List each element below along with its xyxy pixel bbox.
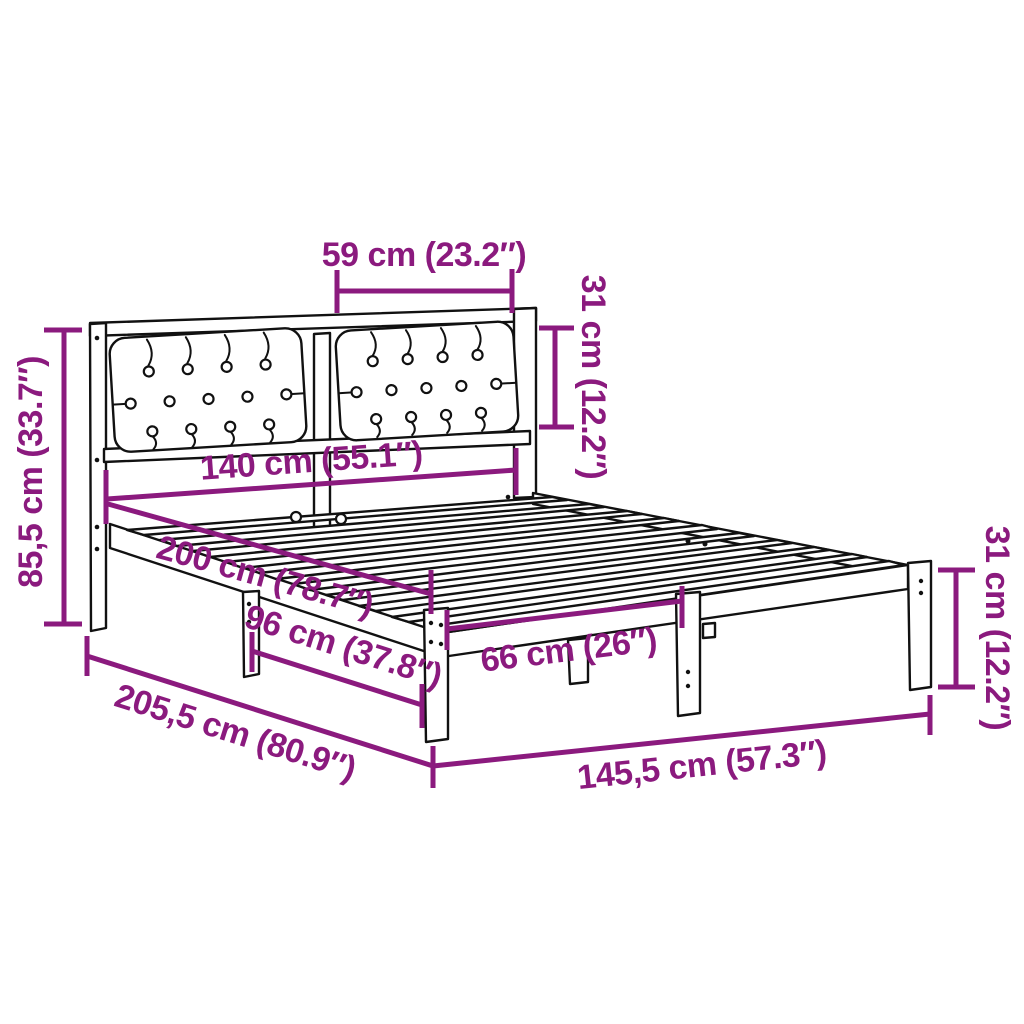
tufting-button bbox=[472, 350, 483, 361]
bed-frame-drawing bbox=[90, 308, 931, 742]
dim-leg-height-label: 31 cm (12.2″) bbox=[978, 526, 1016, 730]
post-hole bbox=[95, 547, 100, 552]
bolt-head bbox=[291, 512, 301, 522]
headboard-middle-post bbox=[314, 333, 330, 529]
dim-headboard-height: 85,5 cm (33.7″) bbox=[12, 330, 82, 624]
tufting-button bbox=[164, 396, 175, 407]
tufting-button bbox=[406, 412, 417, 423]
bracket bbox=[703, 623, 715, 638]
leg-hole bbox=[429, 621, 433, 625]
leg-hole bbox=[439, 642, 443, 646]
dim-headboard-panel-height-label: 31 cm (12.2″) bbox=[574, 275, 612, 479]
screw-hole bbox=[686, 539, 691, 544]
tufting-button bbox=[147, 426, 158, 437]
tufting-button bbox=[441, 410, 452, 421]
tufting-button bbox=[221, 362, 232, 373]
post-hole bbox=[95, 458, 100, 463]
tufting-button bbox=[182, 364, 193, 375]
leg-hole bbox=[686, 670, 690, 674]
dim-cushion-width-label: 59 cm (23.2″) bbox=[322, 236, 526, 274]
tufting-button bbox=[371, 414, 382, 425]
post-hole bbox=[95, 336, 100, 341]
tufting-button bbox=[421, 383, 432, 394]
tufting-button bbox=[281, 389, 292, 400]
tufting-button bbox=[437, 352, 448, 363]
screw-hole bbox=[506, 495, 511, 500]
tufting-button bbox=[402, 354, 413, 365]
tufting-button bbox=[456, 381, 467, 392]
dim-leg-height: 31 cm (12.2″) bbox=[938, 526, 1016, 730]
leg-hole bbox=[439, 623, 443, 627]
tufting-button bbox=[260, 359, 271, 370]
screw-hole bbox=[703, 542, 708, 547]
leg-hole bbox=[686, 684, 690, 688]
tufting-button bbox=[203, 394, 214, 405]
tufting-button bbox=[351, 387, 362, 398]
cushion-seam bbox=[339, 392, 353, 393]
tufting-button bbox=[386, 385, 397, 396]
dim-total-width-label: 145,5 cm (57.3″) bbox=[575, 733, 828, 797]
tufting-button bbox=[225, 421, 236, 432]
bolt-head bbox=[336, 514, 346, 524]
diagram-svg: 59 cm (23.2″) 31 cm (12.2″) 85,5 cm (33.… bbox=[0, 0, 1024, 1024]
tufting-button bbox=[491, 379, 502, 390]
cushion-seam bbox=[502, 383, 516, 384]
tufting-button bbox=[367, 356, 378, 367]
tufting-button bbox=[264, 419, 275, 430]
leg-hole bbox=[919, 579, 923, 583]
dim-headboard-panel-height: 31 cm (12.2″) bbox=[539, 275, 612, 479]
headboard-cushion-left bbox=[109, 327, 307, 452]
leg-hole bbox=[429, 640, 433, 644]
leg-hole bbox=[919, 591, 923, 595]
tufting-button bbox=[186, 424, 197, 435]
tufting-button bbox=[476, 408, 487, 419]
cushion-panel bbox=[109, 327, 307, 452]
dim-cushion-width: 59 cm (23.2″) bbox=[322, 236, 526, 313]
bed-frame-dimension-diagram: 59 cm (23.2″) 31 cm (12.2″) 85,5 cm (33.… bbox=[0, 0, 1024, 1024]
tufting-button bbox=[144, 366, 155, 377]
headboard-cushion-right bbox=[335, 321, 519, 441]
tufting-button bbox=[125, 398, 136, 409]
post-hole bbox=[95, 525, 100, 530]
tufting-button bbox=[242, 391, 253, 402]
dim-headboard-height-label: 85,5 cm (33.7″) bbox=[12, 356, 50, 588]
